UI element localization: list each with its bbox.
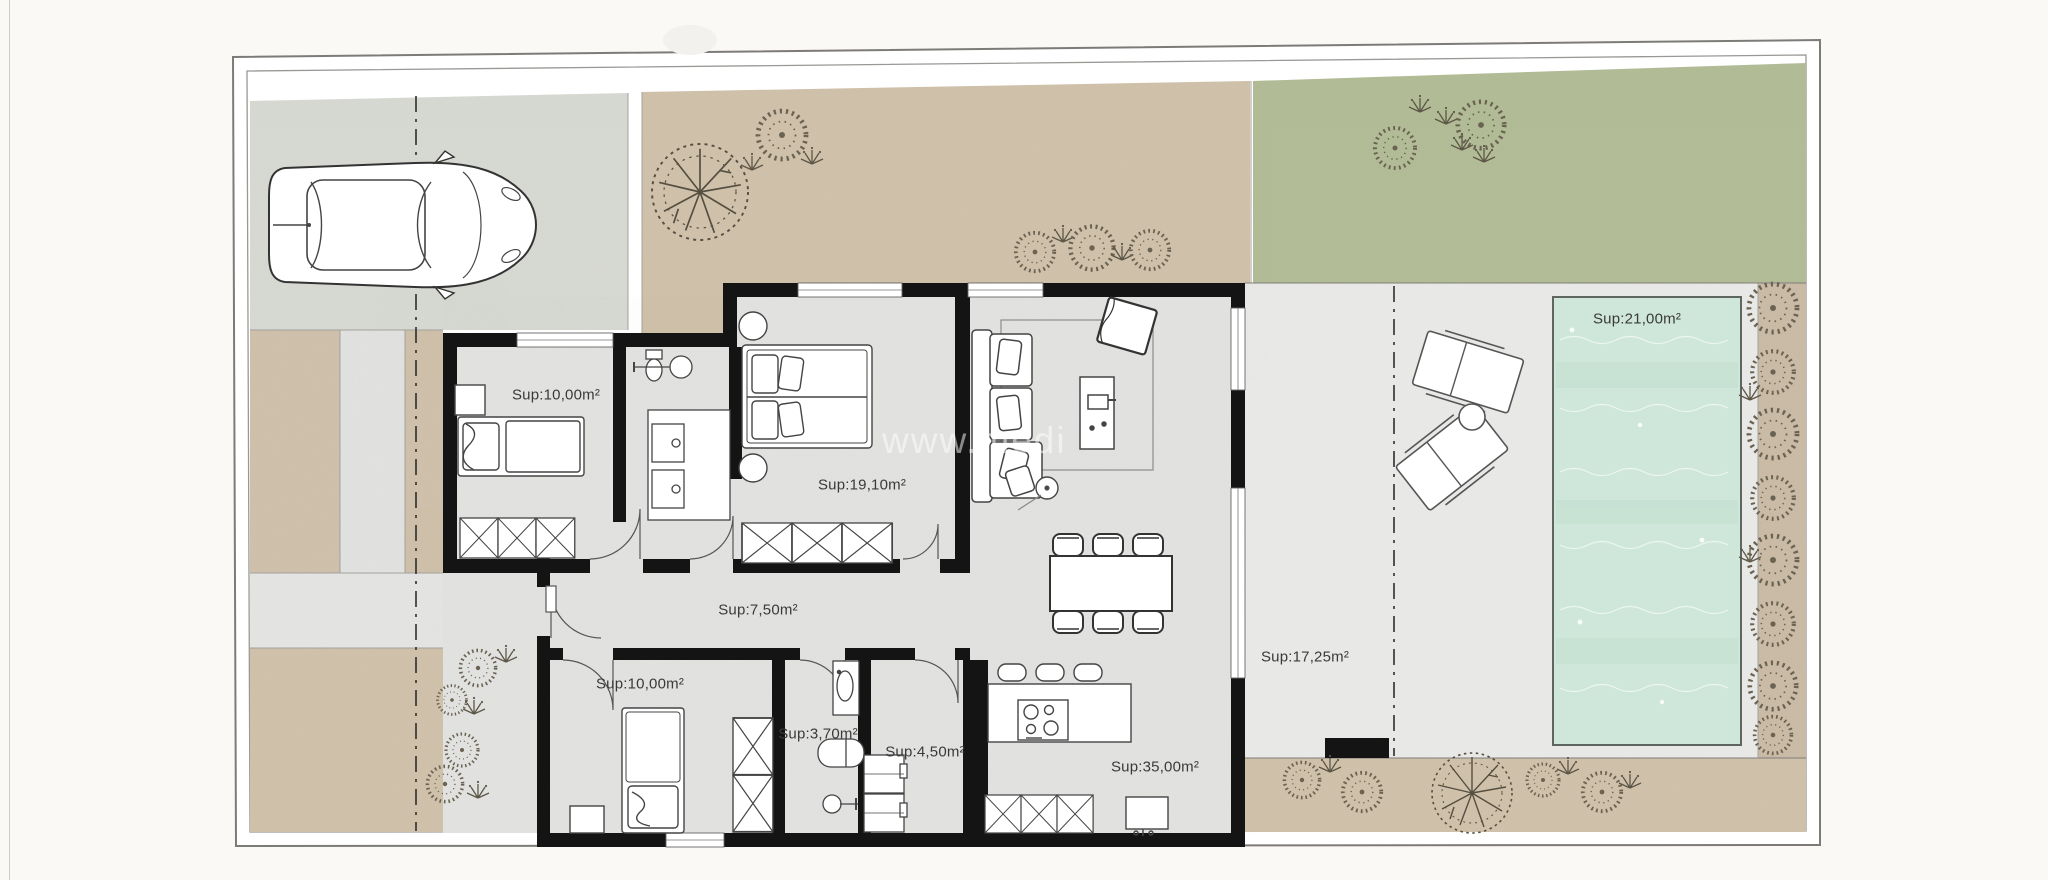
room-label-bedroom-bottom-left: Sup:10,00m² [596, 676, 684, 693]
laundry-appliances [864, 755, 907, 832]
master-bedroom-furniture [739, 312, 892, 563]
room-label-terrace: Sup:17,25m² [1261, 649, 1349, 666]
room-label-hallway: Sup:7,50m² [718, 602, 798, 619]
room-label-pool: Sup:21,00m² [1593, 311, 1681, 328]
watermark: www.medi [882, 420, 1067, 462]
pool [1553, 297, 1741, 745]
floor-plan-page: Sup:10,00m² Sup:19,10m² Sup:7,50m² Sup:1… [0, 0, 2048, 880]
car [269, 151, 536, 299]
side-table [1459, 404, 1485, 430]
room-label-bathroom-small: Sup:3,70m² [778, 726, 858, 743]
room-label-kitchen-living: Sup:35,00m² [1111, 759, 1199, 776]
faint-cloud-shape [663, 25, 717, 55]
room-label-bedroom-top-left: Sup:10,00m² [512, 387, 600, 404]
dining-set [1050, 534, 1172, 633]
room-label-laundry: Sup:4,50m² [885, 744, 965, 761]
room-label-master-bedroom: Sup:19,10m² [818, 477, 906, 494]
terrace-step [1325, 738, 1389, 758]
